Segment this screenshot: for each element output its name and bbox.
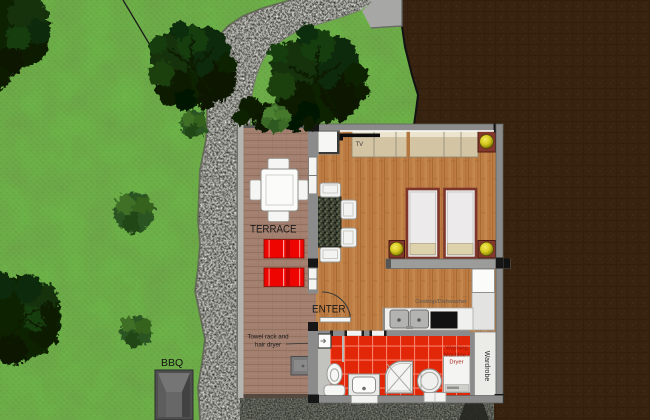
svg-text:Machine /: Machine / [444, 353, 470, 359]
svg-text:Cooktop/Dishwasher: Cooktop/Dishwasher [415, 299, 467, 305]
svg-text:Dryer: Dryer [449, 360, 463, 366]
svg-text:TV: TV [356, 142, 364, 148]
svg-text:ENTER: ENTER [312, 304, 346, 316]
svg-text:Towel rack and: Towel rack and [247, 334, 289, 341]
svg-text:hair dryer: hair dryer [255, 342, 281, 349]
svg-text:Washing: Washing [445, 346, 467, 352]
svg-text:TERRACE: TERRACE [250, 224, 297, 236]
svg-text:BBQ: BBQ [161, 357, 183, 369]
svg-text:Wardrobe: Wardrobe [483, 351, 490, 382]
